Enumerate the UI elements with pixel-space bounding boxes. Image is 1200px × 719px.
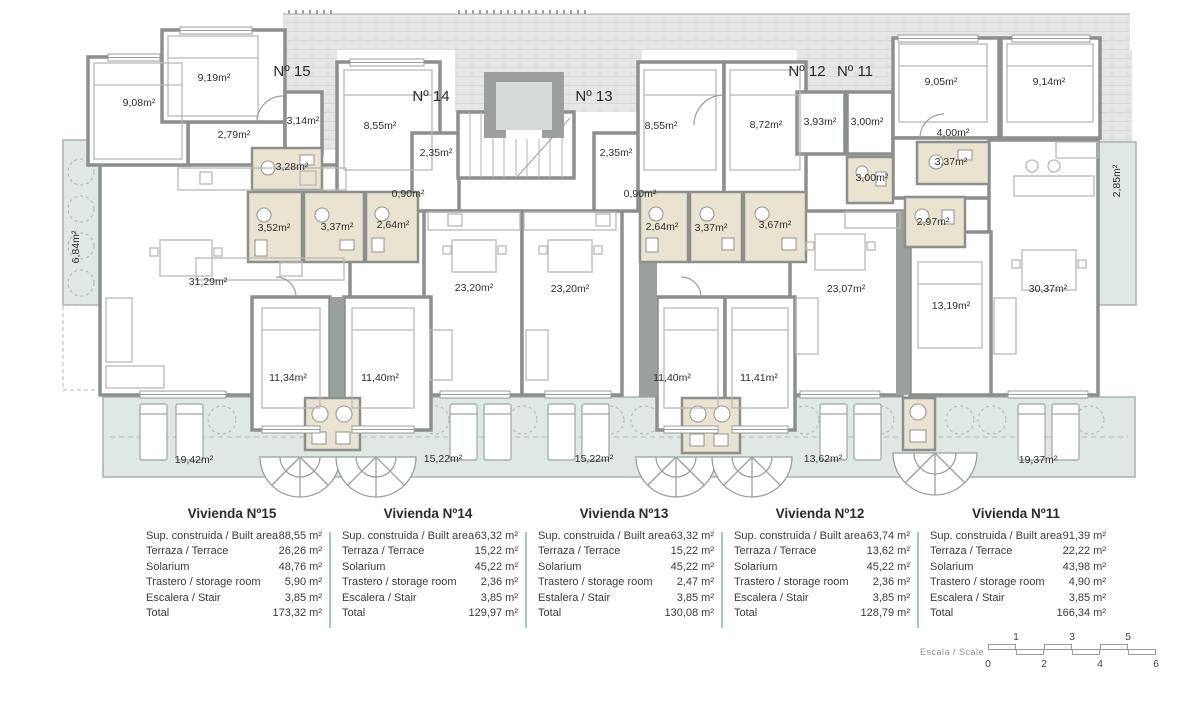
table-row: Total129,97 m²: [334, 606, 522, 621]
table-vivienda-15: Vivienda Nº15 Sup. construida / Built ar…: [138, 506, 326, 621]
unit-label-15: Nº 15: [273, 63, 310, 80]
scale-tick: 0: [985, 658, 991, 670]
row-value: 2,47 m²: [677, 575, 714, 590]
room-label: 4,00m²: [937, 127, 970, 139]
table-divider: [721, 532, 723, 628]
row-value: 45,22 m²: [671, 560, 714, 575]
terrace-label: 15,22m²: [424, 453, 463, 465]
window-icon: [664, 426, 718, 433]
table-row: Sup. construida / Built area91,39 m²: [922, 529, 1110, 544]
room-label: 11,40m²: [653, 372, 691, 384]
table-title: Vivienda Nº15: [138, 506, 326, 521]
row-value: 91,39 m²: [1063, 529, 1106, 544]
room-label: 0,90m²: [624, 188, 657, 200]
stair-semicircle: [636, 457, 716, 497]
table-row: Escalera / Stair3,85 m²: [922, 591, 1110, 606]
room-label: 2,64m²: [377, 219, 410, 231]
scale-segment: [988, 644, 1016, 650]
sink-icon: [646, 238, 658, 252]
row-label: Escalera / Stair: [930, 591, 1005, 606]
room-label: 9,19m²: [198, 72, 231, 84]
window-icon: [180, 27, 252, 34]
row-label: Total: [930, 606, 953, 621]
row-label: Solarium: [342, 560, 385, 575]
row-label: Estalera / Stair: [538, 591, 610, 606]
scale-label: Escala / Scale: [920, 647, 984, 657]
unit-label-14: Nº 14: [412, 88, 449, 105]
sink-icon: [312, 432, 326, 444]
room-label: 9,14m²: [1033, 76, 1066, 88]
balcony-left-dashed-extension: [63, 305, 103, 390]
sink-icon: [340, 240, 354, 250]
room-label: 3,00m²: [851, 116, 884, 128]
table-row: Sup. construida / Built area88,55 m²: [138, 529, 326, 544]
window-icon: [440, 391, 510, 398]
room-label: 31,29m²: [189, 276, 228, 288]
row-label: Trastero / storage room: [146, 575, 261, 590]
window-icon: [108, 54, 160, 61]
row-label: Terraza / Terrace: [734, 544, 816, 559]
table-title: Vivienda Nº13: [530, 506, 718, 521]
floor-plan-page: Nº 15 Nº 14 Nº 13 Nº 12 Nº 11 6,84m² 9,0…: [0, 0, 1200, 719]
window-icon: [140, 391, 226, 398]
row-label: Trastero / storage room: [930, 575, 1045, 590]
elevator-door-gap: [506, 130, 542, 139]
lounger-icon: [176, 404, 203, 460]
roof-right-corner: [1098, 50, 1132, 144]
stair-semicircle: [336, 457, 416, 497]
table-row: Terraza / Terrace15,22 m²: [334, 544, 522, 559]
room-label: 9,08m²: [123, 97, 156, 109]
row-label: Terraza / Terrace: [538, 544, 620, 559]
row-label: Terraza / Terrace: [930, 544, 1012, 559]
row-label: Total: [734, 606, 757, 621]
sink-icon: [782, 238, 796, 250]
scale-segment: [1044, 644, 1072, 650]
lounger-icon: [1018, 404, 1045, 460]
row-value: 166,34 m²: [1056, 606, 1106, 621]
scale-tick: 5: [1125, 631, 1131, 643]
table-row: Total173,32 m²: [138, 606, 326, 621]
row-label: Total: [342, 606, 365, 621]
row-label: Sup. construida / Built area: [734, 529, 866, 544]
row-value: 3,85 m²: [481, 591, 518, 606]
room-label: 8,55m²: [364, 120, 397, 132]
unit-area-tables: Vivienda Nº15 Sup. construida / Built ar…: [138, 506, 1110, 628]
room-label: 2,35m²: [420, 147, 453, 159]
toilet-icon: [257, 208, 271, 222]
table-row: Trastero / storage room2,47 m²: [530, 575, 718, 590]
row-label: Escalera / Stair: [146, 591, 221, 606]
row-label: Total: [538, 606, 561, 621]
table-row: Terraza / Terrace22,22 m²: [922, 544, 1110, 559]
room-label: 2,97m²: [917, 216, 950, 228]
toilet-icon: [910, 404, 926, 420]
row-value: 88,55 m²: [279, 529, 322, 544]
room-label: 2,64m²: [646, 221, 679, 233]
table-row: Escalera / Stair3,85 m²: [334, 591, 522, 606]
row-label: Sup. construida / Built area: [930, 529, 1062, 544]
row-label: Total: [146, 606, 169, 621]
terrace-label: 15,22m²: [575, 453, 614, 465]
table-divider: [329, 532, 331, 628]
table-row: Sup. construida / Built area63,74 m²: [726, 529, 914, 544]
window-icon: [350, 59, 424, 66]
table-divider: [917, 532, 919, 628]
terrace-label: 19,42m²: [175, 454, 214, 466]
window-icon: [1008, 391, 1088, 398]
lounger-icon: [450, 404, 477, 460]
table-row: Sup. construida / Built area63,32 m²: [334, 529, 522, 544]
room-label: 11,40m²: [361, 372, 399, 384]
scale-tick: 4: [1097, 658, 1103, 670]
row-value: 2,36 m²: [481, 575, 518, 590]
sink-icon: [910, 430, 926, 442]
room-label: 3,52m²: [258, 222, 291, 234]
room-label: 8,55m²: [645, 120, 678, 132]
sink-icon: [372, 238, 384, 252]
table-vivienda-11: Vivienda Nº11 Sup. construida / Built ar…: [922, 506, 1110, 621]
window-icon: [732, 426, 788, 433]
room-label: 8,72m²: [750, 119, 783, 131]
unit-label-13: Nº 13: [575, 88, 612, 105]
room-label: 23,07m²: [827, 283, 866, 295]
scale-tick: 3: [1069, 631, 1075, 643]
row-value: 63,32 m²: [475, 529, 518, 544]
door-arc-icon: [681, 277, 701, 297]
row-label: Trastero / storage room: [734, 575, 849, 590]
row-label: Escalera / Stair: [734, 591, 809, 606]
room-label: 3,93m²: [804, 116, 837, 128]
table-row: Solarium43,98 m²: [922, 560, 1110, 575]
floor-plan-drawing: Nº 15 Nº 14 Nº 13 Nº 12 Nº 11 6,84m² 9,0…: [0, 0, 1200, 505]
row-value: 63,74 m²: [867, 529, 910, 544]
room-living-2320a: [424, 211, 522, 395]
row-label: Solarium: [146, 560, 189, 575]
scale-segment: [1100, 644, 1128, 650]
row-label: Terraza / Terrace: [146, 544, 228, 559]
room-label: 9,05m²: [925, 76, 958, 88]
window-icon: [800, 391, 880, 398]
scale-segment: [1128, 649, 1156, 655]
row-value: 173,32 m²: [272, 606, 322, 621]
lounger-icon: [820, 404, 847, 460]
room-label: 30,37m²: [1029, 283, 1068, 295]
table-row: Solarium45,22 m²: [726, 560, 914, 575]
lounger-icon: [548, 404, 575, 460]
row-label: Trastero / storage room: [538, 575, 653, 590]
room-label: 3,37m²: [321, 221, 354, 233]
toilet-icon: [649, 207, 663, 221]
table-row: Terraza / Terrace15,22 m²: [530, 544, 718, 559]
scale-segment: [1072, 649, 1100, 655]
table-row: Solarium45,22 m²: [530, 560, 718, 575]
room-bed-1319: [910, 232, 991, 395]
row-value: 45,22 m²: [867, 560, 910, 575]
sink-icon: [255, 240, 267, 256]
sink-icon: [714, 434, 728, 446]
room-label: 3,67m²: [759, 219, 792, 231]
table-row: Solarium48,76 m²: [138, 560, 326, 575]
row-value: 15,22 m²: [475, 544, 518, 559]
table-row: Escalera / Stair3,85 m²: [138, 591, 326, 606]
elevator-cab: [496, 82, 552, 130]
room-label: 2,85m²: [1111, 164, 1123, 197]
scale-tick: 1: [1013, 631, 1019, 643]
room-label: 11,41m²: [740, 372, 778, 384]
table-title: Vivienda Nº12: [726, 506, 914, 521]
room-bed-905: [893, 38, 999, 138]
scale-tick: 2: [1041, 658, 1047, 670]
row-value: 13,62 m²: [867, 544, 910, 559]
room-label: 11,34m²: [269, 372, 307, 384]
stair-semicircle: [260, 457, 340, 497]
room-label: 0,90m²: [392, 188, 425, 200]
room-label: 23,20m²: [551, 283, 590, 295]
lounger-icon: [1052, 404, 1079, 460]
table-vivienda-12: Vivienda Nº12 Sup. construida / Built ar…: [726, 506, 914, 621]
row-label: Sup. construida / Built area: [146, 529, 278, 544]
sink-icon: [336, 432, 350, 444]
sink-icon: [690, 434, 704, 446]
row-label: Escalera / Stair: [342, 591, 417, 606]
window-icon: [545, 391, 611, 398]
window-icon: [898, 35, 978, 42]
window-icon: [262, 426, 320, 433]
stair-spiral: [893, 453, 977, 495]
table-divider: [525, 532, 527, 628]
scale-segment: [1016, 649, 1044, 655]
table-row: Solarium45,22 m²: [334, 560, 522, 575]
lounger-icon: [484, 404, 511, 460]
row-label: Solarium: [734, 560, 777, 575]
table-row: Terraza / Terrace13,62 m²: [726, 544, 914, 559]
table-row: Trastero / storage room2,36 m²: [726, 575, 914, 590]
room-label: 3,00m²: [856, 172, 889, 184]
table-row: Trastero / storage room2,36 m²: [334, 575, 522, 590]
unit-label-12: Nº 12: [788, 63, 825, 80]
table-vivienda-13: Vivienda Nº13 Sup. construida / Built ar…: [530, 506, 718, 621]
room-label: 3,37m²: [695, 222, 728, 234]
room-label: 2,79m²: [218, 129, 251, 141]
table-row: Escalera / Stair3,85 m²: [726, 591, 914, 606]
row-value: 130,08 m²: [664, 606, 714, 621]
scale-bar: Escala / Scale 1 3 5 0 2 4 6: [920, 632, 1190, 680]
room-label: 6,84m²: [70, 230, 82, 263]
row-value: 3,85 m²: [873, 591, 910, 606]
row-label: Terraza / Terrace: [342, 544, 424, 559]
room-label: 23,20m²: [455, 282, 494, 294]
row-label: Solarium: [930, 560, 973, 575]
toilet-icon: [336, 406, 352, 422]
room-label: 3,14m²: [287, 115, 320, 127]
table-row: Estalera / Stair3,85 m²: [530, 591, 718, 606]
row-value: 26,26 m²: [279, 544, 322, 559]
row-value: 48,76 m²: [279, 560, 322, 575]
lounger-icon: [140, 404, 167, 460]
row-value: 22,22 m²: [1063, 544, 1106, 559]
row-value: 3,85 m²: [285, 591, 322, 606]
table-row: Terraza / Terrace26,26 m²: [138, 544, 326, 559]
stair-semicircle: [712, 457, 792, 497]
lounger-icon: [854, 404, 881, 460]
room-living-2320b: [522, 211, 622, 395]
table-row: Trastero / storage room5,90 m²: [138, 575, 326, 590]
row-value: 45,22 m²: [475, 560, 518, 575]
terrace-label: 13,62m²: [804, 453, 843, 465]
row-value: 3,85 m²: [1069, 591, 1106, 606]
row-label: Trastero / storage room: [342, 575, 457, 590]
toilet-icon: [315, 208, 329, 222]
room-bed-872: [724, 62, 806, 210]
row-value: 3,85 m²: [677, 591, 714, 606]
table-row: Trastero / storage room4,90 m²: [922, 575, 1110, 590]
row-value: 129,97 m²: [468, 606, 518, 621]
room-label: 3,28m²: [276, 161, 309, 173]
row-value: 43,98 m²: [1063, 560, 1106, 575]
lounger-icon: [582, 404, 609, 460]
row-value: 5,90 m²: [285, 575, 322, 590]
table-title: Vivienda Nº14: [334, 506, 522, 521]
row-value: 4,90 m²: [1069, 575, 1106, 590]
terrace-label: 19,37m²: [1019, 454, 1058, 466]
room-bed-914: [1001, 38, 1100, 138]
unit-label-11: Nº 11: [837, 63, 873, 80]
room-label: 13,19m²: [932, 300, 971, 312]
row-value: 2,36 m²: [873, 575, 910, 590]
table-row: Total166,34 m²: [922, 606, 1110, 621]
table-row: Total130,08 m²: [530, 606, 718, 621]
row-label: Sup. construida / Built area: [538, 529, 670, 544]
room-label: 2,35m²: [600, 147, 633, 159]
scale-tick: 6: [1153, 658, 1159, 670]
row-label: Solarium: [538, 560, 581, 575]
table-title: Vivienda Nº11: [922, 506, 1110, 521]
room-label: 3,37m²: [935, 156, 968, 168]
window-icon: [352, 426, 414, 433]
table-row: Sup. construida / Built area63,32 m²: [530, 529, 718, 544]
row-value: 15,22 m²: [671, 544, 714, 559]
table-vivienda-14: Vivienda Nº14 Sup. construida / Built ar…: [334, 506, 522, 621]
row-value: 128,79 m²: [860, 606, 910, 621]
row-label: Sup. construida / Built area: [342, 529, 474, 544]
sink-icon: [722, 238, 734, 250]
toilet-icon: [700, 207, 714, 221]
window-icon: [1012, 35, 1090, 42]
row-value: 63,32 m²: [671, 529, 714, 544]
table-row: Total128,79 m²: [726, 606, 914, 621]
